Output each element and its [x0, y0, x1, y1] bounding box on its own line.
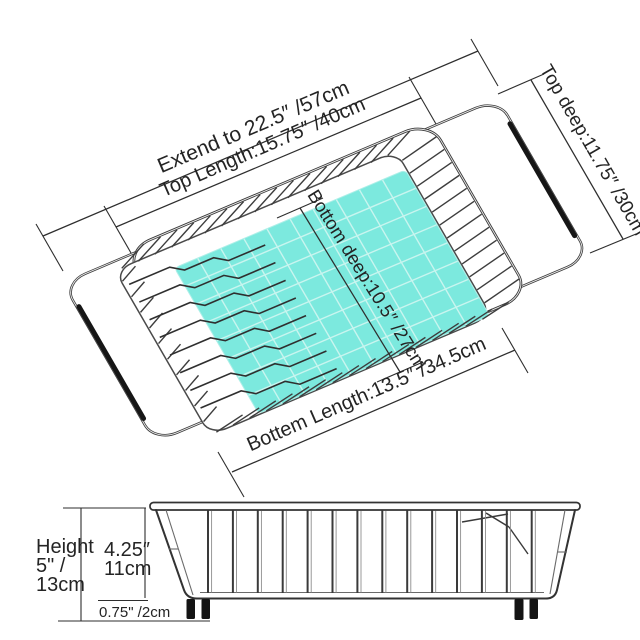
product-diagram-canvas: Extend to 22.5″ /57cm Top Length:15.75″ … — [0, 0, 640, 640]
right-rubber-grip — [510, 124, 575, 236]
side-right-end-post — [546, 510, 575, 599]
top-deep-label: Top deep:11.75″ /30cm — [535, 61, 640, 239]
right-foot-2 — [530, 599, 539, 619]
left-foot-2 — [202, 599, 211, 619]
basket-height-label-line2: 11cm — [104, 558, 151, 580]
side-top-rail — [150, 503, 580, 511]
side-hook-brace-3 — [509, 527, 528, 554]
side-left-end-post — [156, 510, 197, 599]
dish-rack-dimension-diagram: Extend to 22.5″ /57cm Top Length:15.75″ … — [0, 0, 640, 640]
right-foot-1 — [515, 599, 524, 620]
side-hook-brace-1 — [462, 514, 508, 522]
height-label-line3: 13cm — [36, 574, 85, 596]
side-view: Height 5" / 13cm 4.25″ 11cm 0.75" /2cm — [36, 503, 580, 622]
top-isometric-view: Extend to 22.5″ /57cm Top Length:15.75″ … — [36, 39, 640, 497]
feet-height-label: 0.75" /2cm — [99, 604, 170, 621]
left-rubber-grip — [79, 307, 144, 419]
side-vertical-wires — [208, 511, 535, 594]
left-foot-1 — [187, 599, 196, 619]
